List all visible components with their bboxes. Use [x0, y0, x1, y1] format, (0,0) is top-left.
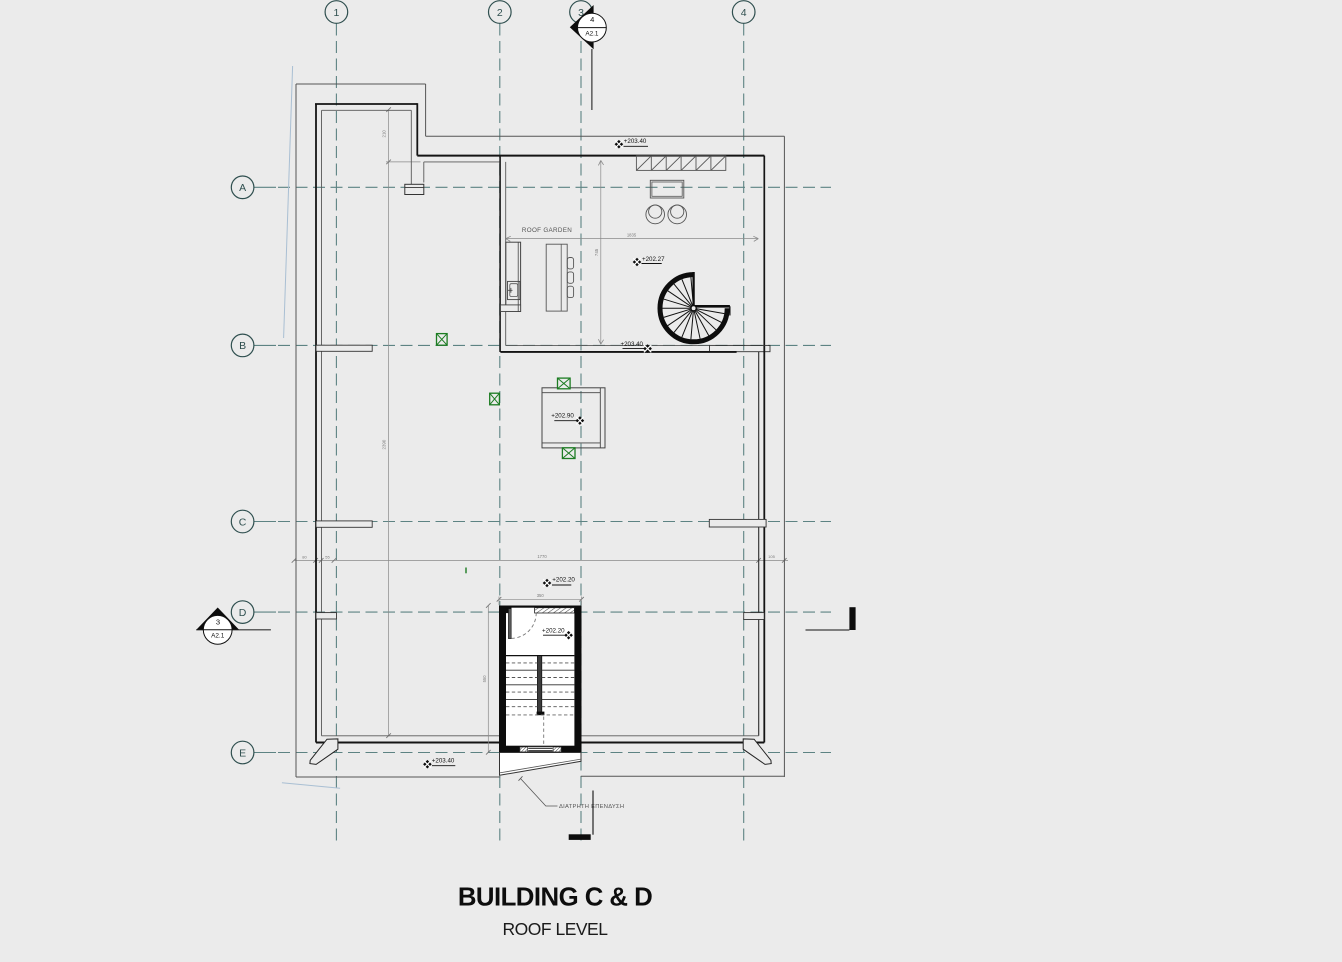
svg-text:A: A: [239, 182, 246, 194]
svg-text:D: D: [239, 607, 247, 619]
svg-text:105: 105: [768, 554, 775, 559]
svg-text:4: 4: [741, 7, 747, 19]
svg-text:+202.27: +202.27: [642, 256, 665, 263]
svg-text:ROOF LEVEL: ROOF LEVEL: [503, 919, 609, 939]
svg-text:+202.20: +202.20: [542, 627, 565, 634]
svg-text:55: 55: [325, 554, 330, 559]
svg-text:350: 350: [537, 593, 545, 598]
svg-text:ΔΙΑΤΡΗΤΗ ΕΠΕΝΔΥΣΗ: ΔΙΑΤΡΗΤΗ ΕΠΕΝΔΥΣΗ: [559, 804, 624, 810]
svg-text:2390: 2390: [382, 439, 387, 449]
svg-text:3: 3: [216, 617, 220, 626]
svg-text:ROOF GARDEN: ROOF GARDEN: [522, 227, 572, 234]
svg-text:1: 1: [333, 7, 339, 19]
svg-text:745: 745: [594, 248, 599, 256]
svg-text:B: B: [239, 340, 246, 352]
svg-text:A2.1: A2.1: [585, 30, 599, 37]
svg-text:+202.90: +202.90: [551, 413, 574, 420]
svg-text:1770: 1770: [537, 554, 547, 559]
svg-text:80: 80: [302, 554, 307, 559]
svg-text:1835: 1835: [627, 233, 637, 238]
svg-text:E: E: [239, 747, 246, 759]
svg-text:+203.40: +203.40: [624, 138, 647, 145]
svg-text:210: 210: [382, 130, 387, 138]
svg-text:+203.40: +203.40: [620, 341, 643, 348]
svg-text:+202.20: +202.20: [552, 577, 575, 584]
svg-text:2: 2: [497, 7, 503, 19]
svg-text:A2.1: A2.1: [211, 633, 225, 640]
svg-text:BUILDING C & D: BUILDING C & D: [458, 884, 652, 912]
svg-text:550: 550: [482, 675, 487, 683]
svg-text:C: C: [239, 516, 247, 528]
svg-text:+203.40: +203.40: [432, 758, 455, 765]
svg-text:4: 4: [590, 15, 594, 24]
